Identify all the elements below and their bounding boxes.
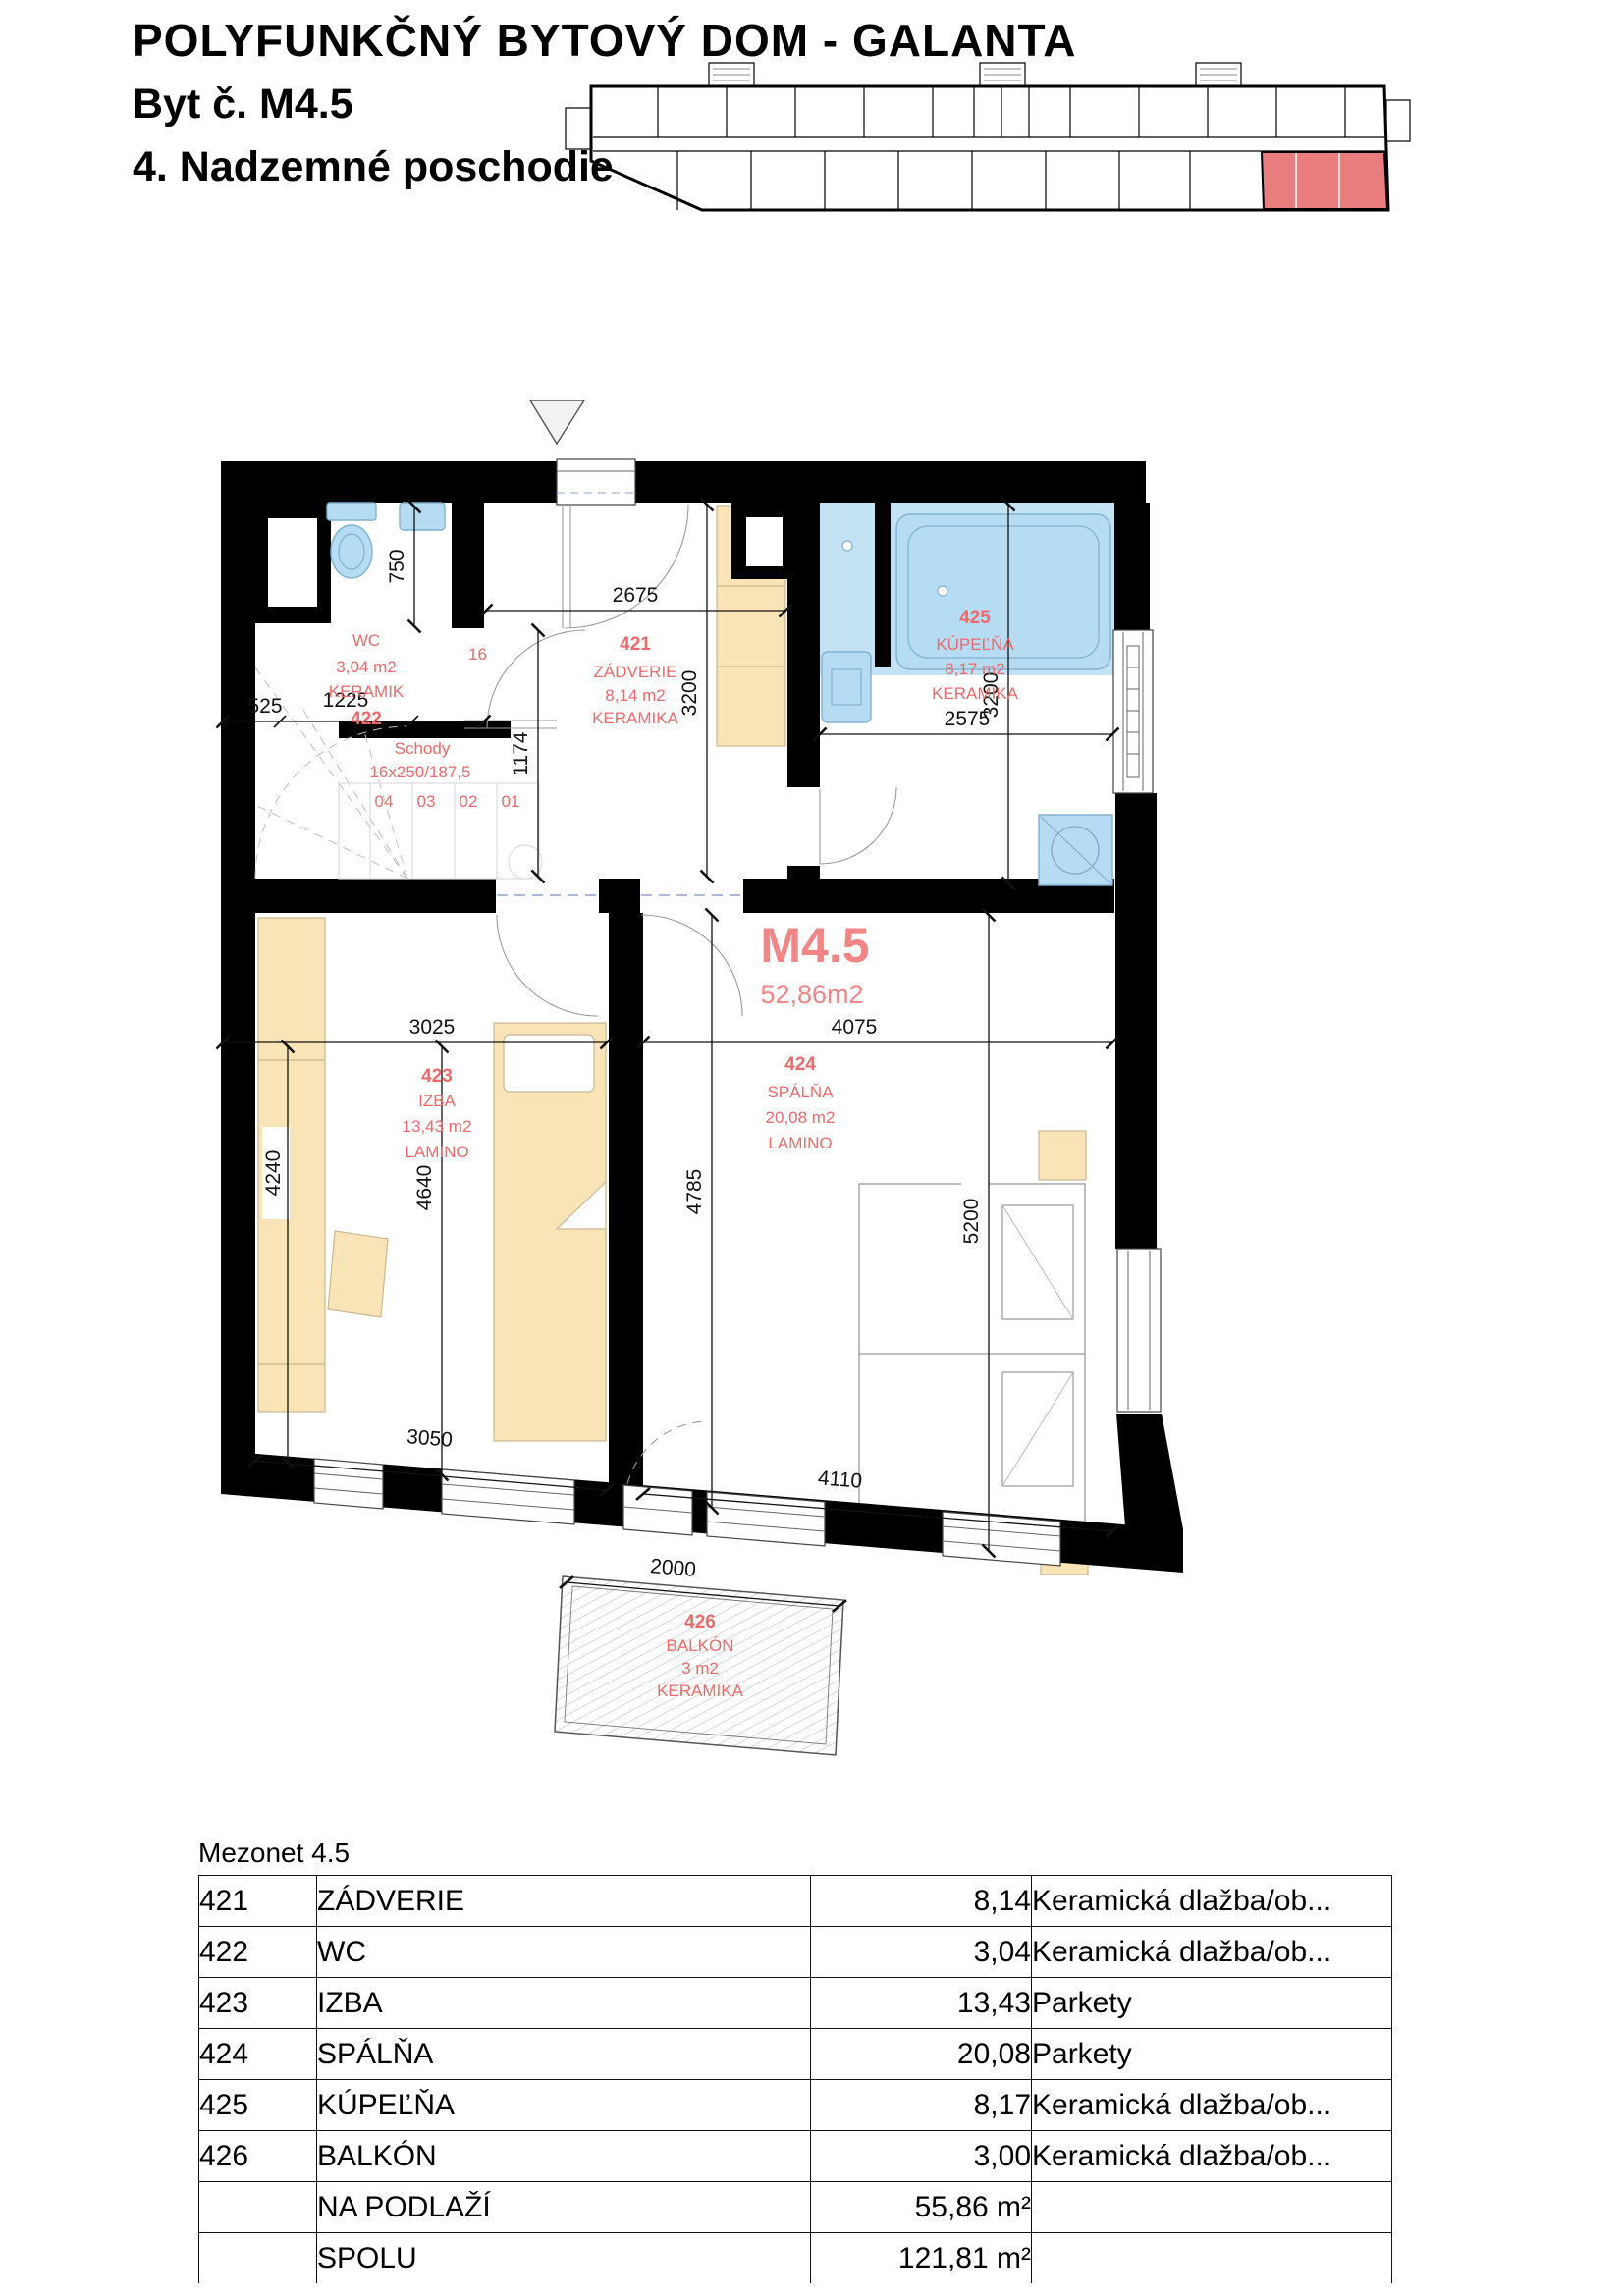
table-row: 425 KÚPEĽŇA 8,17 Keramická dlažba/ob... [199,2080,1392,2131]
svg-text:3200: 3200 [678,670,701,717]
table-caption: Mezonet 4.5 [198,1838,350,1869]
svg-text:LAMINO: LAMINO [768,1134,832,1152]
bathroom-sink [822,652,871,722]
svg-text:Schody: Schody [395,739,451,758]
table-row: 422 WC 3,04 Keramická dlažba/ob... [199,1927,1392,1978]
shower-drain [842,541,852,551]
label-421: 421 ZÁDVERIE 8,14 m2 KERAMIKA [592,634,679,727]
svg-text:IZBA: IZBA [418,1092,456,1110]
window-right-upper [1113,630,1153,793]
svg-text:52,86m2: 52,86m2 [760,980,863,1009]
unit-highlight-red [1262,152,1387,209]
svg-text:ZÁDVERIE: ZÁDVERIE [593,663,676,681]
room-area-table: 421 ZÁDVERIE 8,14 Keramická dlažba/ob...… [198,1875,1392,2283]
svg-text:13,43 m2: 13,43 m2 [403,1117,472,1136]
building-outline [566,63,1410,210]
svg-text:4240: 4240 [262,1150,285,1197]
svg-text:KERAMIKA: KERAMIKA [657,1682,744,1700]
svg-text:3 m2: 3 m2 [681,1659,719,1678]
svg-text:16x250/187,5: 16x250/187,5 [369,763,470,781]
svg-text:WC: WC [352,631,380,650]
svg-text:5200: 5200 [960,1199,983,1245]
label-423: 423 IZBA 13,43 m2 LAMINO [403,1066,472,1161]
svg-text:04: 04 [375,792,394,811]
svg-text:750: 750 [386,549,408,583]
svg-text:KERAMIKA: KERAMIKA [932,684,1019,703]
svg-text:BALKÓN: BALKÓN [667,1636,734,1655]
svg-text:8,17 m2: 8,17 m2 [945,660,1004,678]
building-overview-plan [530,51,1434,223]
table-row: 424 SPÁLŇA 20,08 Parkety [199,2029,1392,2080]
svg-text:8,14 m2: 8,14 m2 [605,686,665,705]
svg-text:1174: 1174 [510,731,532,775]
svg-text:426: 426 [684,1612,716,1632]
svg-text:4110: 4110 [817,1467,863,1493]
toilet-bowl [331,525,372,578]
table-row: 421 ZÁDVERIE 8,14 Keramická dlažba/ob... [199,1876,1392,1927]
svg-text:3025: 3025 [409,1016,456,1039]
svg-text:01: 01 [502,792,520,811]
svg-text:525: 525 [247,695,282,718]
svg-text:423: 423 [421,1066,453,1087]
svg-text:422: 422 [351,709,382,729]
wc-sink [400,503,445,530]
svg-text:02: 02 [460,792,478,811]
label-424: 424 SPÁLŇA 20,08 m2 LAMINO [766,1054,836,1152]
label-422: WC 3,04 m2 KERAMIK 422 [329,631,405,729]
apartment-floorplan: 525 1225 750 1174 2675 3200 2575 3200 30… [211,383,1193,1757]
svg-text:425: 425 [959,608,991,628]
window-right-lower [1117,1249,1161,1412]
svg-text:3050: 3050 [406,1425,453,1452]
summary-row: SPOLU 121,81 m² [199,2233,1392,2284]
svg-text:4075: 4075 [832,1016,878,1039]
floorplan-document-page: POLYFUNKČNÝ BYTOVÝ DOM - GALANTA Byt č. … [0,0,1623,2296]
svg-text:2000: 2000 [649,1555,697,1581]
entrance-door [557,459,635,505]
svg-text:KERAMIK: KERAMIK [329,682,405,701]
toilet-tank [327,503,376,520]
svg-text:KÚPEĽŇA: KÚPEĽŇA [936,635,1014,654]
svg-text:4640: 4640 [413,1165,436,1211]
svg-text:LAMINO: LAMINO [405,1143,468,1161]
svg-text:SPÁLŇA: SPÁLŇA [767,1083,834,1101]
svg-text:20,08 m2: 20,08 m2 [766,1108,836,1127]
svg-text:03: 03 [417,792,436,811]
svg-text:16: 16 [468,645,487,664]
chair-423 [328,1231,388,1317]
nightstand-424-top [1039,1131,1086,1180]
table-row: 426 BALKÓN 3,00 Keramická dlažba/ob... [199,2131,1392,2182]
table-row: 423 IZBA 13,43 Parkety [199,1978,1392,2029]
svg-text:424: 424 [784,1054,816,1075]
svg-text:2675: 2675 [613,584,659,607]
summary-row: NA PODLAŽÍ 55,86 m² [199,2182,1392,2233]
svg-text:M4.5: M4.5 [760,918,869,973]
svg-text:3,04 m2: 3,04 m2 [336,658,396,676]
apartment-number-line: Byt č. M4.5 [133,80,353,129]
svg-text:4785: 4785 [683,1169,706,1215]
washing-machine [1039,815,1112,885]
svg-text:KERAMIKA: KERAMIKA [592,709,679,727]
entrance-arrow-icon [530,400,584,444]
label-unit: M4.5 52,86m2 [760,918,869,1009]
svg-text:421: 421 [620,634,651,655]
